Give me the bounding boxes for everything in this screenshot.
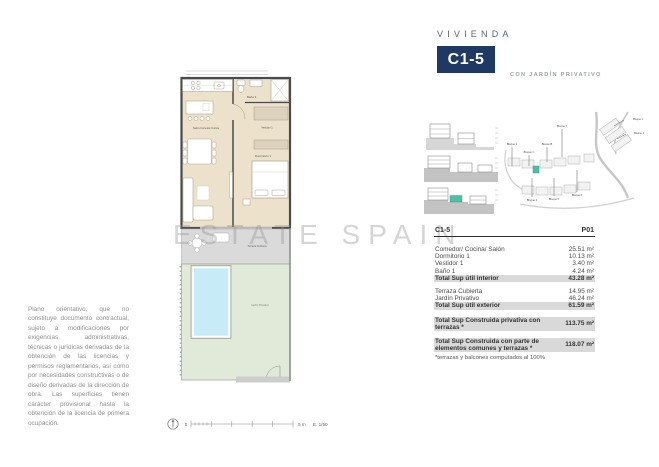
table-row: Comedor/ Cocina/ Salón 25.51 m² <box>434 246 595 253</box>
table-column: P01 <box>582 227 594 234</box>
dressing-label: Vestidor 1 <box>261 126 273 130</box>
floor-plan: Baño 1 Vestidor 1 Dormitorio 1 <box>158 66 312 388</box>
terrace-label: Terraza Cubierta <box>247 244 267 248</box>
row-label: Jardín Privativo <box>435 295 479 302</box>
row-value: 113.75 m² <box>565 320 594 327</box>
row-value: 43.28 m² <box>568 275 594 282</box>
unit-code-badge: C1-5 <box>437 46 495 73</box>
north-arrow-icon <box>168 419 178 429</box>
row-label: Total Sup útil interior <box>435 275 499 282</box>
table-row-total: Total Sup útil exterior 61.59 m² <box>434 302 595 309</box>
living-label: Salón-Comedor-Cocina <box>193 127 220 130</box>
row-label: Total Sup útil exterior <box>435 302 500 309</box>
highlighted-unit-site <box>533 166 539 173</box>
dining-table <box>183 139 216 164</box>
row-label: Baño 1 <box>435 268 455 275</box>
table-unit: C1-5 <box>435 227 450 234</box>
tv-unit <box>230 172 233 198</box>
sink <box>250 80 262 87</box>
row-value: 25.51 m² <box>569 246 594 253</box>
row-label: Terraza Cubierta <box>435 288 482 295</box>
table-row: Baño 1 4.24 m² <box>434 268 595 275</box>
coffee-table <box>197 186 209 200</box>
bedroom-label: Dormitorio 1 <box>255 154 272 158</box>
block-label: Bloque C <box>524 150 535 154</box>
elevation-2 <box>424 156 498 182</box>
elevation-3 <box>424 188 498 214</box>
highlighted-unit-section <box>450 196 462 203</box>
scale-zero: 0 <box>185 422 188 427</box>
block-label: Bloque 1 <box>633 117 644 121</box>
block-label: Bloque 7 <box>557 124 568 128</box>
legal-disclaimer: Plano orientativo, que no constituye doc… <box>28 305 129 428</box>
lounger <box>213 233 229 242</box>
block-label: Bloque 2 <box>634 131 645 135</box>
table-row: Vestidor 1 3.40 m² <box>434 260 595 267</box>
terrace: Terraza Cubierta <box>182 229 291 264</box>
row-value: 4.24 m² <box>572 268 594 275</box>
scale-bar: 0 5 m E. 1/50 <box>164 415 334 433</box>
table-row: Dormitorio 1 10.13 m² <box>434 253 595 260</box>
bath-label: Baño 1 <box>247 95 257 99</box>
section-elevations <box>424 116 502 218</box>
table-row: Jardín Privativo 46.24 m² <box>434 295 595 302</box>
row-value: 46.24 m² <box>569 295 594 302</box>
building-blocks <box>508 118 631 195</box>
block-label: Bloque 5 <box>549 197 560 201</box>
row-value: 61.59 m² <box>568 302 594 309</box>
block-label: Bloque B <box>542 142 553 146</box>
row-value: 14.95 m² <box>569 288 594 295</box>
neighbour-structure <box>186 71 268 75</box>
row-label: Vestidor 1 <box>435 260 463 267</box>
site-plan: Bloque 3 Bloque C Bloque B Bloque 7 Bloq… <box>500 110 648 218</box>
row-value: 10.13 m² <box>569 253 594 260</box>
scale-ratio: E. 1/50 <box>313 422 328 427</box>
table-row: Terraza Cubierta 14.95 m² <box>434 288 595 295</box>
row-label: Total Sup Construida privativa con terra… <box>435 317 561 331</box>
garden-label: Jardín Privativo <box>251 303 269 307</box>
table-row-total: Total Sup Construida privativa con terra… <box>434 317 595 331</box>
row-label: Dormitorio 1 <box>435 253 470 260</box>
vivienda-label: VIVIENDA <box>437 29 513 39</box>
area-table: C1-5 P01 Comedor/ Cocina/ Salón 25.51 m²… <box>434 227 595 361</box>
nightstand <box>243 199 250 205</box>
elevation-1 <box>426 124 498 150</box>
block-label: Bloque 3 <box>507 142 518 146</box>
plan-sheet: VIVIENDA C1-5 CON JARDÍN PRIVATIVO <box>0 0 659 467</box>
scale-length: 5 m <box>298 422 306 427</box>
table-footnote: *terrazas y balcones computados al 100% <box>434 355 595 361</box>
block-label: Bloque 4 <box>527 198 538 202</box>
row-value: 3.40 m² <box>572 260 594 267</box>
unit-code: C1-5 <box>448 51 485 69</box>
row-value: 118.07 m² <box>565 341 594 348</box>
wardrobe <box>254 107 288 120</box>
toilet <box>237 80 245 86</box>
table-header: C1-5 P01 <box>434 227 595 237</box>
unit-subtitle: CON JARDÍN PRIVATIVO <box>510 72 602 78</box>
row-label: Total Sup Construida con parte de elemen… <box>435 338 553 352</box>
table-row-total: Total Sup útil interior 43.28 m² <box>434 275 595 282</box>
block-label: Bloque 6 <box>572 193 583 197</box>
table-row-total: Total Sup Construida con parte de elemen… <box>434 338 595 352</box>
wardrobe-2 <box>254 140 288 149</box>
row-label: Comedor/ Cocina/ Salón <box>435 246 505 253</box>
pool <box>193 268 229 337</box>
ruler <box>191 421 293 428</box>
